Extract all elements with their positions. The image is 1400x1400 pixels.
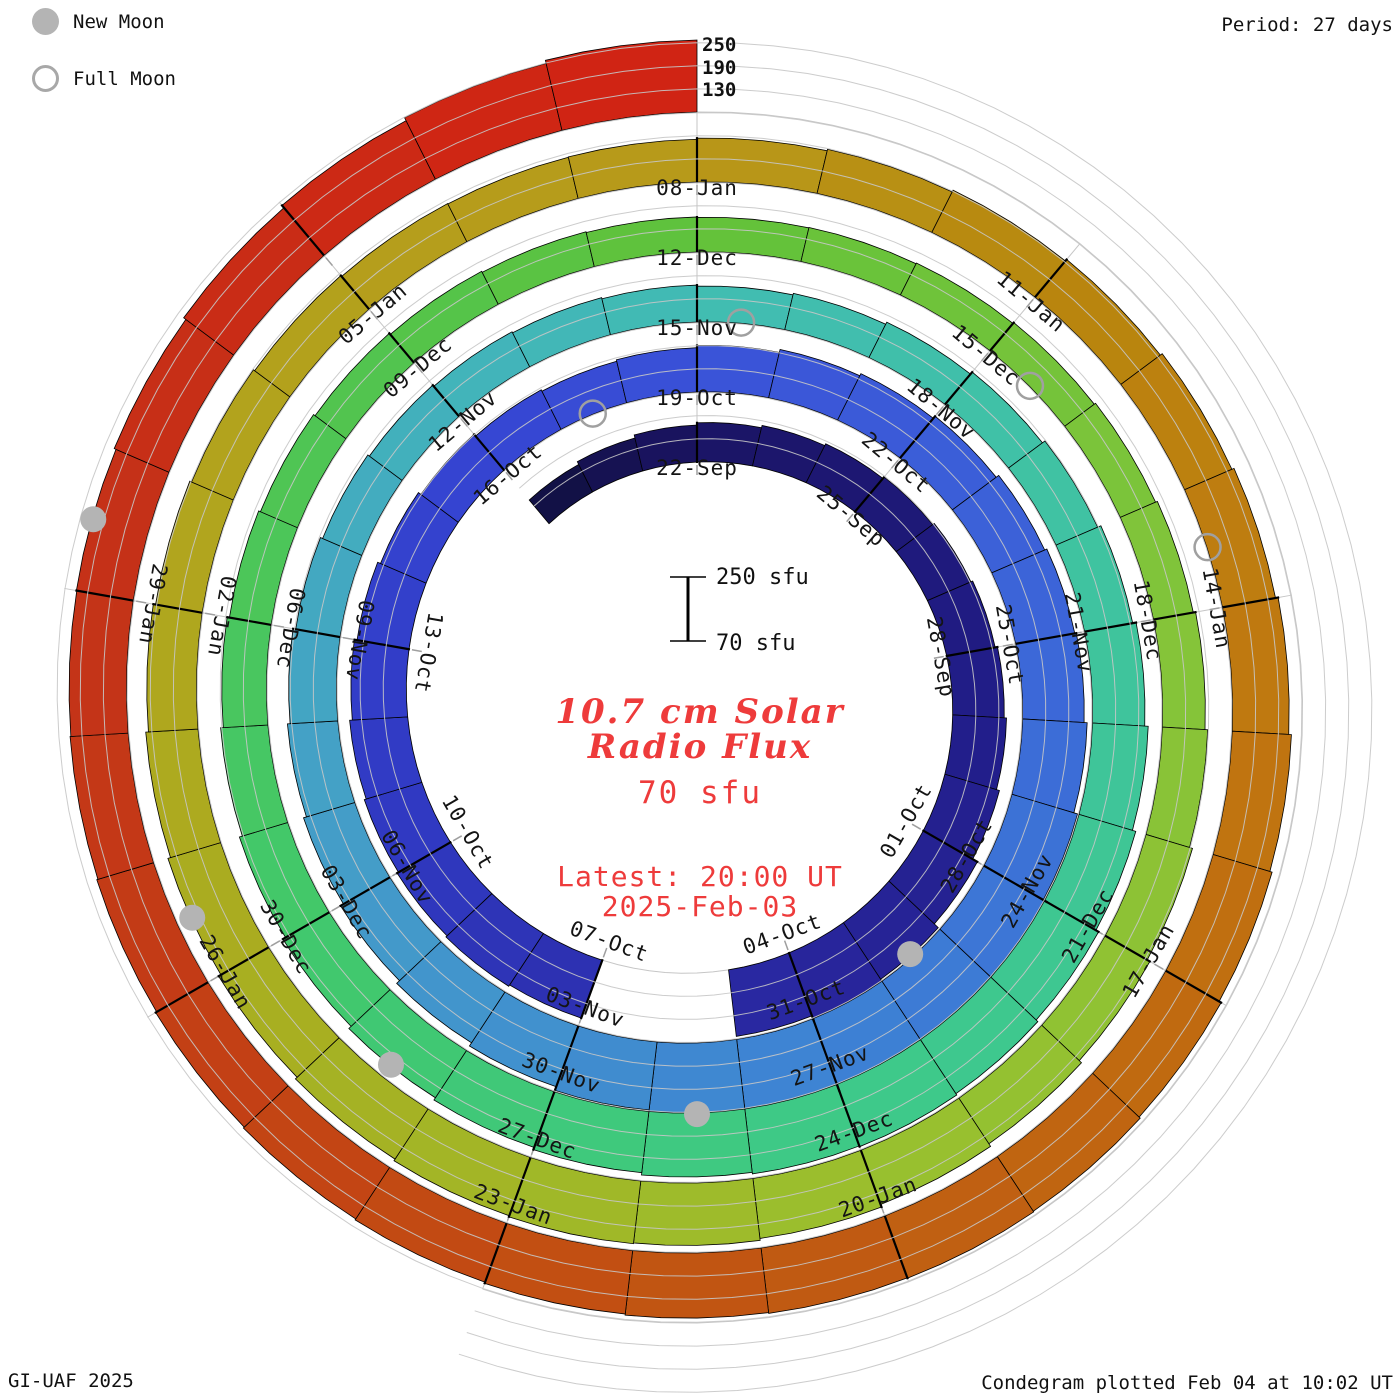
latest-time-label: Latest: 20:00 UT — [0, 860, 1400, 893]
day-segment — [785, 293, 886, 357]
day-segment — [634, 1178, 761, 1245]
day-segment — [513, 298, 611, 367]
flux-bars-layer — [69, 40, 1291, 1318]
period-label: Period: 27 days — [1221, 14, 1393, 36]
new-moon-marker — [80, 506, 106, 532]
flux-scalebar: 250 sfu 70 sfu — [670, 565, 809, 656]
credit-label: GI-UAF 2025 — [8, 1370, 134, 1392]
new-moon-label: New Moon — [73, 11, 165, 33]
radial-scale-190: 190 — [702, 57, 736, 79]
date-label-19-Oct: 19-Oct — [656, 386, 738, 410]
current-flux-value: 70 sfu — [0, 775, 1400, 811]
chart-title-line1: 10.7 cm Solar — [0, 692, 1400, 732]
legend-full-moon: Full Moon — [32, 65, 176, 92]
date-label-12-Dec: 12-Dec — [656, 246, 738, 270]
new-moon-marker — [378, 1052, 404, 1078]
date-label-08-Jan: 08-Jan — [656, 176, 738, 200]
latest-date-label: 2025-Feb-03 — [0, 890, 1400, 923]
new-moon-marker — [684, 1101, 710, 1127]
new-moon-icon — [32, 8, 59, 35]
scalebar-bottom-label: 70 sfu — [716, 631, 795, 656]
condegram-page: 22-Sep25-Sep28-Sep01-Oct04-Oct07-Oct10-O… — [0, 0, 1400, 1400]
chart-title-line2: Radio Flux — [0, 727, 1400, 767]
radial-scale-labels: 250 190 130 — [702, 34, 736, 101]
new-moon-marker — [897, 941, 923, 967]
day-segment — [625, 1248, 769, 1318]
plotted-label: Condegram plotted Feb 04 at 10:02 UT — [981, 1372, 1393, 1394]
full-moon-label: Full Moon — [73, 68, 176, 90]
full-moon-icon — [32, 65, 59, 92]
day-segment — [801, 227, 916, 295]
date-label-13-Oct: 13-Oct — [410, 610, 448, 695]
radial-scale-250: 250 — [702, 34, 736, 56]
day-segment — [817, 149, 952, 232]
scalebar-top-label: 250 sfu — [716, 565, 809, 590]
radial-scale-130: 130 — [702, 79, 736, 101]
date-label-22-Sep: 22-Sep — [656, 456, 738, 480]
date-label-15-Nov: 15-Nov — [656, 316, 738, 340]
day-segment — [482, 232, 594, 305]
day-segment — [545, 40, 697, 130]
legend-new-moon: New Moon — [32, 8, 165, 35]
